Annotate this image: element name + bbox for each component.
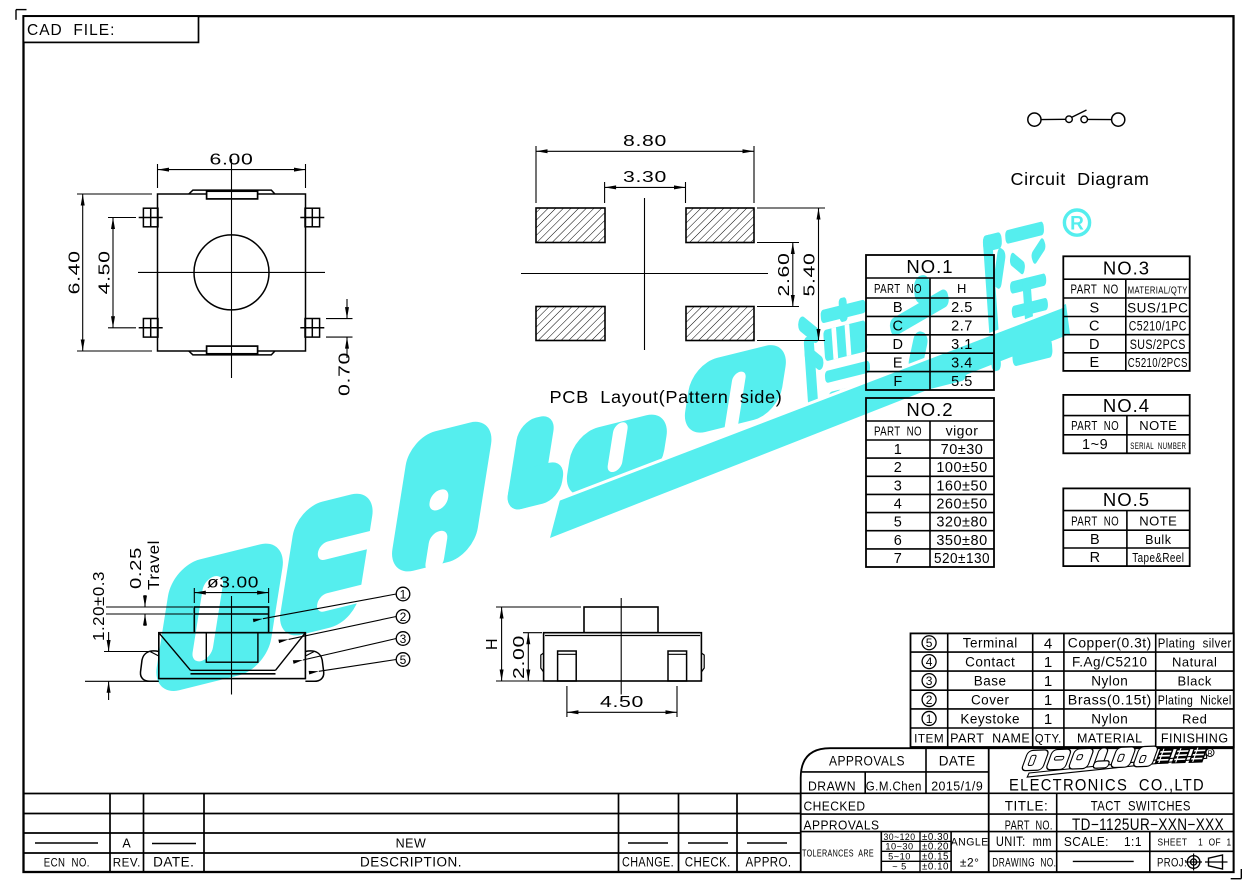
- svg-text:Plating silver: Plating silver: [1158, 636, 1232, 651]
- svg-text:PART NO: PART NO: [874, 425, 922, 439]
- svg-text:3.30: 3.30: [623, 169, 667, 186]
- svg-text:2015/1/9: 2015/1/9: [931, 778, 983, 793]
- svg-text:2: 2: [894, 460, 903, 476]
- svg-text:2.60: 2.60: [776, 253, 793, 297]
- svg-text:Base: Base: [974, 673, 1007, 688]
- svg-text:1: 1: [400, 588, 407, 602]
- svg-text:NOTE: NOTE: [1139, 513, 1177, 528]
- svg-text:R: R: [1207, 750, 1212, 757]
- svg-text:PCB Layout(Pattern side): PCB Layout(Pattern side): [550, 387, 783, 407]
- svg-text:2.00: 2.00: [511, 635, 528, 679]
- svg-text:260±50: 260±50: [936, 497, 987, 513]
- svg-text:TOLERANCES ARE: TOLERANCES ARE: [802, 847, 874, 859]
- svg-text:R: R: [1090, 550, 1101, 566]
- svg-text:G.M.Chen: G.M.Chen: [866, 779, 922, 793]
- svg-text:±2°: ±2°: [960, 855, 980, 869]
- svg-text:DESCRIPTION.: DESCRIPTION.: [360, 855, 462, 870]
- svg-text:DATE.: DATE.: [153, 855, 194, 870]
- svg-text:Circuit Diagram: Circuit Diagram: [1011, 169, 1150, 189]
- svg-text:D: D: [893, 337, 904, 353]
- svg-text:1.20±0.3: 1.20±0.3: [91, 571, 108, 641]
- svg-text:FINISHING: FINISHING: [1161, 731, 1229, 745]
- svg-text:3: 3: [400, 632, 407, 646]
- svg-text:MATERIAL/QTY: MATERIAL/QTY: [1128, 286, 1188, 297]
- svg-text:2.7: 2.7: [951, 319, 973, 335]
- svg-text:160±50: 160±50: [936, 478, 987, 494]
- svg-text:REV.: REV.: [113, 856, 141, 870]
- svg-text:Contact: Contact: [965, 654, 1015, 669]
- svg-text:SUS/1PC: SUS/1PC: [1127, 300, 1188, 315]
- svg-text:4.50: 4.50: [600, 694, 644, 711]
- svg-text:MATERIAL: MATERIAL: [1077, 731, 1143, 745]
- svg-text:ø3.00: ø3.00: [207, 575, 259, 592]
- svg-text:APPROVALS: APPROVALS: [804, 817, 880, 832]
- svg-text:Keystoke: Keystoke: [960, 711, 1020, 726]
- svg-text:ECN NO.: ECN NO.: [44, 856, 90, 870]
- svg-text:H: H: [484, 638, 501, 650]
- svg-text:Tape&Reel: Tape&Reel: [1132, 551, 1184, 565]
- svg-text:1~9: 1~9: [1082, 437, 1108, 453]
- svg-text:C: C: [1089, 319, 1100, 335]
- svg-text:NO.5: NO.5: [1103, 489, 1150, 510]
- svg-text:4: 4: [1044, 635, 1053, 652]
- svg-text:2: 2: [926, 693, 933, 707]
- svg-text:PART NO: PART NO: [1071, 283, 1119, 297]
- svg-text:520±130: 520±130: [934, 551, 990, 567]
- svg-text:NO.4: NO.4: [1103, 395, 1150, 416]
- svg-text:1: 1: [894, 442, 903, 458]
- svg-text:1: 1: [1044, 654, 1053, 671]
- svg-text:E: E: [893, 355, 903, 371]
- svg-text:C5210/2PCS: C5210/2PCS: [1128, 356, 1188, 370]
- svg-text:1: 1: [1044, 692, 1053, 709]
- svg-text:4: 4: [894, 497, 903, 513]
- svg-text:Red: Red: [1182, 711, 1207, 726]
- svg-text:2.5: 2.5: [951, 300, 973, 316]
- svg-text:100±50: 100±50: [936, 460, 987, 476]
- svg-text:ITEM: ITEM: [914, 731, 944, 745]
- svg-text:DATE: DATE: [939, 754, 976, 769]
- svg-text:D: D: [1089, 337, 1100, 353]
- svg-text:R: R: [1070, 214, 1084, 235]
- svg-text:Cover: Cover: [971, 692, 1010, 707]
- svg-text:DRAWING NO.: DRAWING NO.: [992, 855, 1056, 869]
- svg-text:4: 4: [926, 655, 933, 669]
- svg-text:UNIT: mm: UNIT: mm: [996, 834, 1052, 849]
- svg-text:0.70: 0.70: [337, 352, 354, 396]
- svg-text:SCALE: 1:1: SCALE: 1:1: [1064, 834, 1142, 849]
- svg-text:350±80: 350±80: [936, 533, 987, 549]
- svg-text:3: 3: [894, 478, 903, 494]
- svg-text:SHEET 1 OF 1: SHEET 1 OF 1: [1158, 836, 1232, 848]
- svg-text:ELECTRONICS CO.,LTD: ELECTRONICS CO.,LTD: [1009, 776, 1205, 795]
- svg-text:5: 5: [400, 653, 407, 667]
- svg-text:PART NAME: PART NAME: [950, 731, 1030, 745]
- svg-text:Terminal: Terminal: [963, 636, 1018, 651]
- svg-text:F.Ag/C5210: F.Ag/C5210: [1072, 654, 1148, 669]
- svg-text:3.4: 3.4: [951, 355, 973, 371]
- svg-text:Bulk: Bulk: [1145, 533, 1172, 547]
- svg-text:S: S: [1089, 300, 1099, 316]
- svg-text:F: F: [893, 374, 902, 390]
- svg-text:NEW: NEW: [396, 837, 427, 851]
- svg-text:PART NO: PART NO: [1071, 419, 1119, 433]
- svg-text:C: C: [893, 319, 904, 335]
- svg-text:Copper(0.3t): Copper(0.3t): [1068, 636, 1152, 651]
- svg-text:1: 1: [1044, 673, 1053, 690]
- svg-text:ANGLE: ANGLE: [951, 836, 989, 848]
- svg-text:A: A: [122, 837, 131, 851]
- svg-text:QTY.: QTY.: [1035, 731, 1062, 745]
- svg-text:Plating Nickel: Plating Nickel: [1158, 692, 1232, 707]
- svg-text:2: 2: [400, 610, 407, 624]
- svg-text:70±30: 70±30: [941, 442, 984, 458]
- svg-text:TACT SWITCHES: TACT SWITCHES: [1091, 798, 1191, 814]
- svg-text:SUS/2PCS: SUS/2PCS: [1130, 337, 1186, 352]
- svg-text:C5210/1PC: C5210/1PC: [1129, 319, 1187, 334]
- svg-text:1: 1: [926, 712, 933, 726]
- svg-text:E: E: [1089, 355, 1099, 371]
- svg-text:0.25: 0.25: [128, 547, 145, 589]
- svg-text:NO.2: NO.2: [906, 399, 953, 420]
- svg-text:5.40: 5.40: [802, 253, 819, 297]
- svg-text:5: 5: [926, 636, 933, 650]
- svg-text:5~10: 5~10: [888, 852, 911, 862]
- svg-text:NO.1: NO.1: [906, 256, 953, 277]
- svg-text:Black: Black: [1178, 673, 1212, 688]
- svg-text:~ 5: ~ 5: [892, 861, 907, 871]
- svg-text:PART NO.: PART NO.: [1005, 818, 1053, 833]
- svg-text:3: 3: [926, 674, 933, 688]
- svg-text:APPRO.: APPRO.: [746, 855, 792, 870]
- svg-text:PART NO: PART NO: [1071, 514, 1119, 528]
- svg-text:Nylon: Nylon: [1091, 673, 1128, 688]
- svg-text:6: 6: [894, 533, 903, 549]
- svg-text:1: 1: [1044, 711, 1053, 728]
- svg-text:5.5: 5.5: [951, 374, 973, 390]
- svg-text:7: 7: [894, 551, 903, 567]
- svg-text:TITLE:: TITLE:: [1005, 798, 1049, 813]
- svg-text:±0.10: ±0.10: [922, 861, 949, 872]
- svg-text:B: B: [893, 300, 903, 316]
- svg-text:TD−1125UR−XXN−XXX: TD−1125UR−XXN−XXX: [1072, 816, 1224, 834]
- svg-text:PART NO: PART NO: [874, 282, 922, 296]
- svg-text:3.1: 3.1: [951, 337, 973, 353]
- svg-text:6.40: 6.40: [67, 250, 84, 294]
- svg-text:CHECK.: CHECK.: [685, 855, 731, 870]
- svg-text:PROJ:: PROJ:: [1157, 855, 1187, 869]
- svg-text:vigor: vigor: [946, 423, 979, 439]
- svg-text:CHANGE.: CHANGE.: [622, 855, 674, 870]
- svg-text:10~30: 10~30: [885, 842, 913, 852]
- svg-text:Natural: Natural: [1172, 654, 1217, 669]
- svg-text:Brass(0.15t): Brass(0.15t): [1068, 692, 1152, 707]
- svg-text:NO.3: NO.3: [1103, 257, 1150, 278]
- svg-text:DRAWN: DRAWN: [808, 778, 856, 793]
- svg-text:320±80: 320±80: [936, 515, 987, 531]
- svg-text:H: H: [957, 281, 967, 296]
- svg-text:CHECKED: CHECKED: [804, 798, 866, 813]
- svg-text:SERIAL NUMBER: SERIAL NUMBER: [1130, 441, 1186, 452]
- svg-text:6.00: 6.00: [210, 152, 254, 169]
- svg-text:B: B: [1090, 532, 1100, 548]
- svg-text:CAD FILE:: CAD FILE:: [27, 22, 115, 39]
- svg-text:APPROVALS: APPROVALS: [829, 754, 905, 769]
- svg-text:Travel: Travel: [146, 540, 163, 590]
- svg-text:NOTE: NOTE: [1139, 418, 1177, 433]
- svg-text:8.80: 8.80: [623, 133, 667, 150]
- svg-text:4.50: 4.50: [97, 250, 114, 294]
- svg-text:Nylon: Nylon: [1091, 711, 1128, 726]
- svg-text:5: 5: [894, 515, 903, 531]
